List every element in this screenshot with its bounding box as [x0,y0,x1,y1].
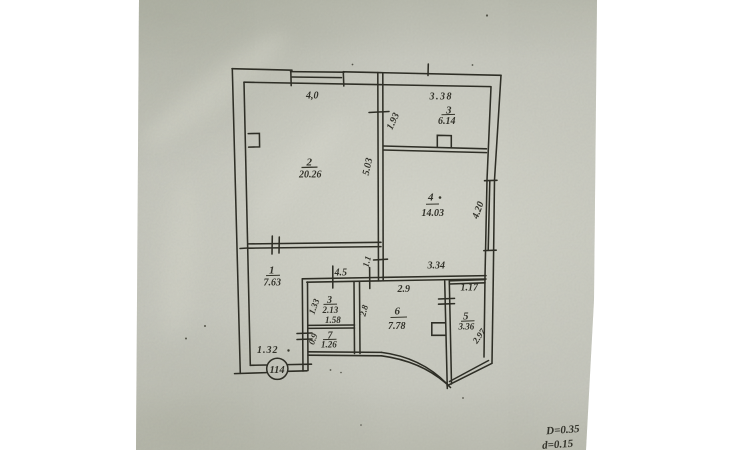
svg-text:4.5: 4.5 [334,268,348,279]
svg-text:6: 6 [395,306,401,318]
svg-text:7.63: 7.63 [264,278,282,289]
svg-text:1.58: 1.58 [325,315,341,325]
svg-text:d=0.15: d=0.15 [542,438,574,450]
svg-text:3.34: 3.34 [427,261,446,272]
svg-text:114: 114 [270,365,285,376]
svg-text:6.14: 6.14 [438,116,456,127]
svg-text:1: 1 [269,265,275,277]
svg-text:3.36: 3.36 [458,322,475,332]
svg-text:1.32: 1.32 [257,345,279,356]
svg-text:2.13: 2.13 [322,305,339,315]
svg-text:14.03: 14.03 [422,208,445,219]
svg-text:3.38: 3.38 [429,92,454,103]
svg-text:20.26: 20.26 [298,170,322,181]
svg-text:4: 4 [427,192,434,204]
svg-text:1.17: 1.17 [461,283,480,294]
svg-text:4,0: 4,0 [305,91,319,102]
svg-text:7.78: 7.78 [388,321,406,332]
svg-text:2.9: 2.9 [397,284,411,295]
svg-text:D=0.35: D=0.35 [545,423,581,437]
svg-text:1.26: 1.26 [321,340,337,350]
